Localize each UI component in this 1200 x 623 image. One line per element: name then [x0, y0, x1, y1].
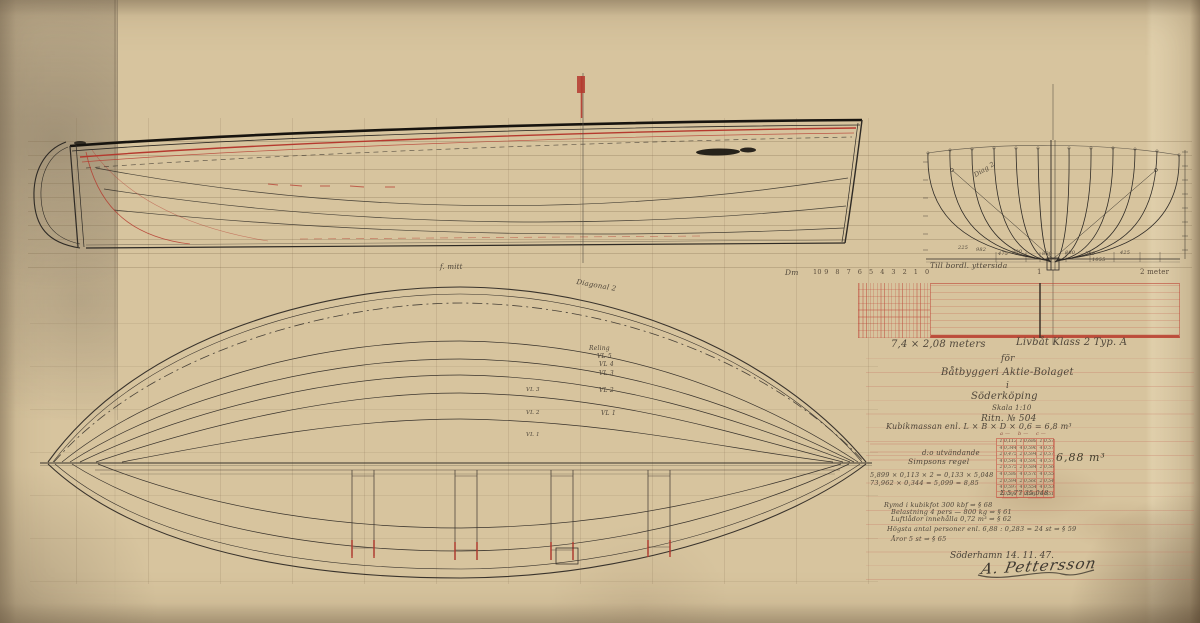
- dim-475: 475: [998, 252, 1008, 257]
- scale-dm-tick: 0: [925, 269, 929, 276]
- label-vl3: VL 3: [599, 371, 614, 377]
- label-vl2-left: VL 2: [526, 411, 540, 417]
- annotations-layer: 7,4 × 2,08 metersLivbåt Klass 2 Typ. Afö…: [0, 0, 1200, 623]
- title-type: Livbåt Klass 2 Typ. A: [1016, 338, 1127, 348]
- label-vl5: VL 5: [597, 354, 612, 360]
- scale-meter-2: 2 meter: [1140, 269, 1169, 276]
- label-reling: Reling: [589, 346, 610, 352]
- dim-1055: 1055: [1092, 258, 1106, 263]
- label-vl2: VL 2: [599, 388, 614, 394]
- label-vl1-left: VL 1: [526, 433, 540, 439]
- dim-425: 425: [1120, 251, 1130, 256]
- label-diag2: Diag 2: [973, 161, 996, 179]
- scale-dm-tick: 4: [880, 269, 884, 276]
- dim-982: 982: [976, 248, 986, 253]
- label-vl3-left: VL 3: [526, 388, 540, 394]
- label-vl4: VL 4: [599, 362, 614, 368]
- dim-800b: 800: [1065, 251, 1075, 256]
- spec-persons: Högsta antal personer enl. 6,88 : 0,283 …: [887, 526, 1076, 533]
- title-company: Båtbyggeri Aktie-Bolaget: [941, 368, 1074, 378]
- title-for: för: [1001, 355, 1015, 364]
- title-scale: Skala 1:10: [992, 405, 1032, 412]
- table-header-c: c —: [1036, 432, 1046, 437]
- formula-line: Kubikmassan enl. L × B × D × 0,6 = 6,8 m…: [886, 423, 1072, 431]
- label-diagonal: Diagonal 2: [576, 279, 617, 293]
- scale-unit: Dm: [785, 269, 799, 277]
- scale-dm-tick: 8: [835, 269, 839, 276]
- scale-dm-tick: 1: [914, 269, 918, 276]
- table-header-b: b —: [1018, 432, 1028, 437]
- table-header-a: a —: [1000, 432, 1010, 437]
- calc-line-2: 73,962 × 0,344 = 5,099 = 8,85: [870, 480, 979, 487]
- scale-dm-tick: 5: [869, 269, 873, 276]
- dim-300: 300: [1012, 250, 1022, 255]
- spec-oars: Åror 5 st ⇒ § 65: [891, 536, 946, 543]
- scale-dm-tick: 6: [858, 269, 862, 276]
- title-dimensions: 7,4 × 2,08 meters: [891, 340, 986, 350]
- label-vl1: VL 1: [601, 411, 616, 417]
- scale-dm-tick: 10: [813, 269, 822, 276]
- scale-meter-1: 1: [1037, 269, 1042, 276]
- dim-225: 225: [958, 246, 968, 251]
- lines-drawing-sheet: 10,11310,68810,57440,34440,59640,57820,4…: [0, 0, 1200, 623]
- row-simpson: Simpsons regel: [908, 458, 969, 466]
- scale-dm-tick: 7: [847, 269, 851, 276]
- scale-dm-tick: 2: [903, 269, 907, 276]
- spec-airtanks: Luftlådor innehålla 0,72 m³ ⇒ § 62: [891, 516, 1011, 523]
- scale-dm-tick: 3: [891, 269, 895, 276]
- title-city: Söderköping: [971, 392, 1038, 402]
- calc-sum: Σ 5,77 35,048: [1000, 490, 1049, 497]
- label-midship: f. mitt: [440, 264, 463, 271]
- dim-800a: 800: [1042, 252, 1052, 257]
- title-in: i: [1006, 382, 1009, 391]
- note-planking: Till bordl. yttersida: [930, 262, 1007, 270]
- scale-dm-tick: 9: [824, 269, 828, 276]
- calc-line-1: 5,899 × 0,113 × 2 = 0,133 × 5,048: [870, 472, 993, 479]
- row-outside: d:o utvändande: [922, 450, 980, 457]
